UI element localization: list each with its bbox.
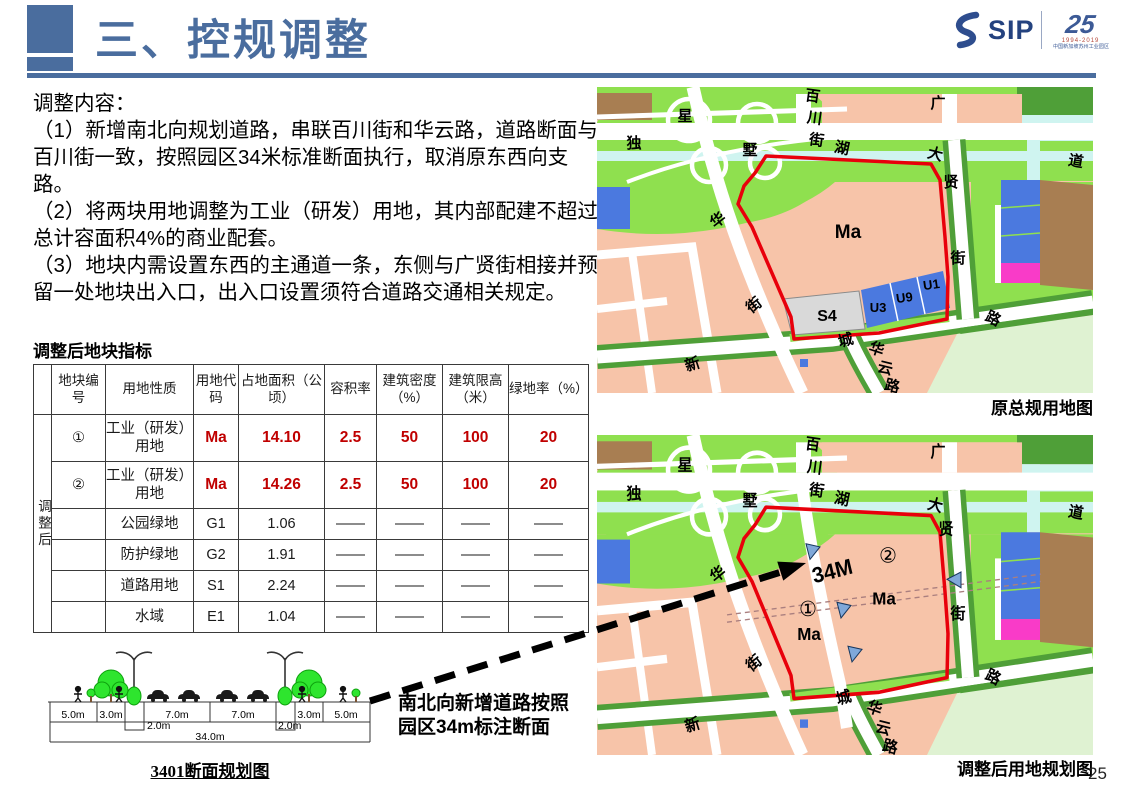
table-row: 防护绿地G21.91————————: [34, 540, 589, 571]
table-cell-density: 50: [377, 415, 443, 462]
dimension-label: 5.0m: [61, 709, 85, 721]
anniversary-number: 25: [1064, 11, 1097, 37]
map-label: 百: [804, 435, 821, 454]
table-cell-far: ——: [325, 602, 377, 633]
intro-item-2: （2）将两块用地调整为工业（研发）用地，其内部配建不超过总计容面积4%的商业配套…: [33, 198, 599, 252]
table-cell-no: [52, 602, 106, 633]
table-cell-green: ——: [509, 509, 589, 540]
table-row: 公园绿地G11.06————————: [34, 509, 589, 540]
table-cell-area: 1.06: [239, 509, 325, 540]
table-cell-area: 14.10: [239, 415, 325, 462]
map-label: 贤: [939, 521, 955, 538]
adjusted-landuse-map: 星独墅百川街湖大道广贤街华街城华云路新路34M②Ma①Ma: [597, 435, 1093, 755]
column-header: 用地性质: [106, 365, 194, 415]
sip-logo-swoosh-icon: [948, 10, 982, 50]
page-number: 25: [1088, 764, 1107, 784]
map-label: S4: [817, 308, 837, 325]
table-cell-density: ——: [377, 509, 443, 540]
column-header: 地块编号: [52, 365, 106, 415]
map-label: 街: [950, 605, 967, 623]
table-cell-no: ①: [52, 415, 106, 462]
table-cell-green: 20: [509, 415, 589, 462]
road-cross-section-diagram: 5.0m3.0m7.0m7.0m3.0m5.0m2.0m2.0m34.0m: [40, 643, 380, 758]
table-cell-green: ——: [509, 571, 589, 602]
section-diagram-caption: 3401断面规划图: [40, 757, 380, 782]
map-label: 广: [931, 443, 946, 461]
table-cell-green: ——: [509, 540, 589, 571]
table-cell-height: ——: [443, 571, 509, 602]
map-label: U9: [895, 289, 914, 306]
sip-logo: SIP 25 1994-2019 中国新加坡苏州工业园区: [948, 10, 1114, 50]
map-label: ②: [879, 544, 897, 568]
intro-heading: 调整内容：: [33, 90, 599, 117]
column-header: 绿地率（%）: [509, 365, 589, 415]
sip-logo-text: SIP: [988, 15, 1035, 46]
table-cell-nature: 防护绿地: [106, 540, 194, 571]
table-cell-area: 1.91: [239, 540, 325, 571]
map-label: 街: [807, 130, 825, 150]
table-row: 水域E11.04————————: [34, 602, 589, 633]
annotation-line-1: 南北向新增道路按照: [398, 692, 569, 716]
map-label: U1: [922, 276, 941, 293]
page-title: 三、控规调整: [95, 6, 371, 68]
table-cell-far: 2.5: [325, 462, 377, 509]
adjustment-content-block: 调整内容： （1）新增南北向规划道路，串联百川街和华云路，道路断面与百川街一致，…: [33, 90, 599, 306]
original-map-caption: 原总规用地图: [850, 394, 1093, 419]
table-cell-code: G2: [194, 540, 239, 571]
map-label: 星: [678, 457, 693, 474]
table-cell-far: ——: [325, 509, 377, 540]
map-label: U3: [870, 300, 887, 315]
column-header: 建筑限高（米）: [443, 365, 509, 415]
table-cell-nature: 道路用地: [106, 571, 194, 602]
table-cell-green: 20: [509, 462, 589, 509]
table-cell-height: ——: [443, 509, 509, 540]
table-cell-no: [52, 509, 106, 540]
table-cell-density: ——: [377, 540, 443, 571]
original-landuse-map: 星独墅百川街湖大道广贤街华街城华云路新路MaS4U3U9U1: [597, 87, 1093, 393]
table-cell-no: [52, 540, 106, 571]
table-cell-area: 14.26: [239, 462, 325, 509]
table-cell-code: Ma: [194, 415, 239, 462]
map-label: 川: [805, 109, 823, 128]
map-label: ①: [799, 598, 817, 622]
map-label: 墅: [743, 493, 759, 510]
map-label: 川: [805, 458, 823, 478]
table-cell-nature: 水域: [106, 602, 194, 633]
map-label: Ma: [835, 222, 862, 243]
dimension-label: 34.0m: [195, 731, 224, 743]
column-header: 用地代码: [194, 365, 239, 415]
dimension-label: 3.0m: [99, 709, 123, 721]
map-label: 道: [1067, 151, 1085, 171]
table-cell-far: 2.5: [325, 415, 377, 462]
column-header: 建筑密度（%）: [377, 365, 443, 415]
map-label: 街: [807, 480, 826, 501]
table-row: 调整后①工业（研发）用地Ma14.102.55010020: [34, 415, 589, 462]
map-label: 贤: [943, 174, 958, 191]
table-cell-density: ——: [377, 571, 443, 602]
map-label: 墅: [742, 142, 757, 159]
table-cell-density: ——: [377, 602, 443, 633]
street-lamp-icon: [116, 652, 303, 702]
table-cell-height: ——: [443, 602, 509, 633]
adjusted-map-caption: 调整后用地规划图: [850, 755, 1093, 780]
title-decoration-bar: [27, 57, 73, 71]
table-cell-code: E1: [194, 602, 239, 633]
corner-cell: [34, 365, 52, 415]
table-cell-nature: 公园绿地: [106, 509, 194, 540]
indicators-table: 地块编号用地性质用地代码占地面积（公顷）容积率建筑密度（%）建筑限高（米）绿地率…: [33, 364, 589, 633]
anniversary-mark: 25 1994-2019 中国新加坡苏州工业园区: [1048, 11, 1114, 50]
dimension-label: 2.0m: [147, 720, 171, 732]
anniversary-org: 中国新加坡苏州工业园区: [1052, 44, 1108, 49]
logo-divider: [1041, 11, 1042, 49]
header-divider-rule: [27, 73, 1096, 78]
dimension-label: 2.0m: [278, 720, 302, 732]
new-road-annotation: 南北向新增道路按照 园区34m标注断面: [398, 692, 569, 740]
table-cell-far: ——: [325, 571, 377, 602]
table-cell-code: Ma: [194, 462, 239, 509]
table-cell-nature: 工业（研发）用地: [106, 462, 194, 509]
table-row: 道路用地S12.24————————: [34, 571, 589, 602]
table-cell-area: 1.04: [239, 602, 325, 633]
slide: 三、控规调整 SIP 25 1994-2019 中国新加坡苏州工业园区 调整内容…: [0, 0, 1123, 794]
map-label: 街: [949, 249, 965, 267]
annotation-line-2: 园区34m标注断面: [398, 716, 569, 740]
table-cell-height: ——: [443, 540, 509, 571]
map-label: Ma: [797, 624, 821, 644]
table-cell-height: 100: [443, 415, 509, 462]
table-cell-code: G1: [194, 509, 239, 540]
indicators-table-body: 调整后①工业（研发）用地Ma14.102.55010020②工业（研发）用地Ma…: [34, 415, 589, 633]
column-header: 容积率: [325, 365, 377, 415]
table-cell-density: 50: [377, 462, 443, 509]
dimension-label: 5.0m: [334, 709, 358, 721]
table-cell-nature: 工业（研发）用地: [106, 415, 194, 462]
intro-item-1: （1）新增南北向规划道路，串联百川街和华云路，道路断面与百川街一致，按照园区34…: [33, 117, 599, 198]
table-cell-no: ②: [52, 462, 106, 509]
table-cell-area: 2.24: [239, 571, 325, 602]
map-label: 星: [677, 108, 692, 125]
column-header: 占地面积（公顷）: [239, 365, 325, 415]
table-cell-far: ——: [325, 540, 377, 571]
map-label: Ma: [872, 588, 896, 608]
map-label: 广: [930, 94, 945, 112]
dimension-label: 7.0m: [231, 709, 255, 721]
table-cell-code: S1: [194, 571, 239, 602]
map-label: 独: [626, 134, 641, 152]
table-cell-height: 100: [443, 462, 509, 509]
table-row: ②工业（研发）用地Ma14.262.55010020: [34, 462, 589, 509]
table-cell-green: ——: [509, 602, 589, 633]
map-label: 独: [627, 484, 643, 502]
car-icon: [147, 690, 269, 702]
table-cell-no: [52, 571, 106, 602]
table-title: 调整后地块指标: [33, 337, 152, 362]
row-group-label: 调整后: [34, 415, 52, 633]
title-decoration-square: [27, 5, 73, 53]
intro-item-3: （3）地块内需设置东西的主通道一条，东侧与广贤街相接并预留一处地块出入口，出入口…: [33, 252, 599, 306]
indicators-table-head-row: 地块编号用地性质用地代码占地面积（公顷）容积率建筑密度（%）建筑限高（米）绿地率…: [34, 365, 589, 415]
map-label: 百: [804, 87, 821, 106]
